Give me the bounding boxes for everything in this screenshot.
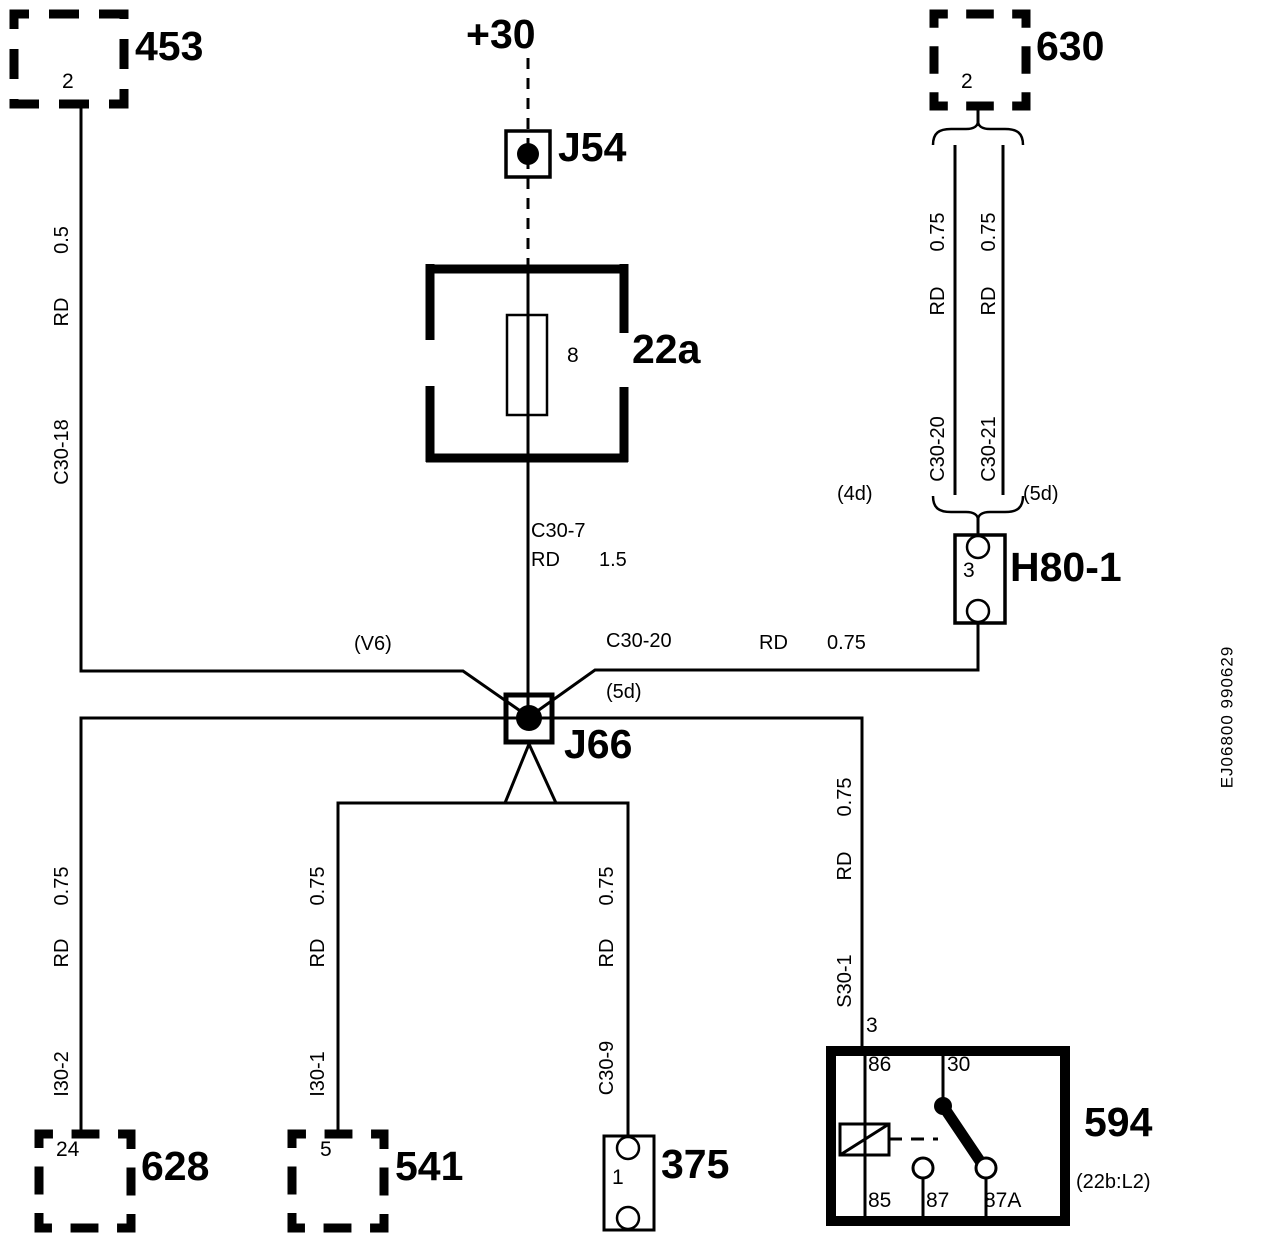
component-box-630 bbox=[934, 14, 1026, 106]
wire-size-h80-j66: 0.75 bbox=[827, 633, 866, 653]
wire-code-h80-j66: C30-20 bbox=[606, 631, 672, 651]
wire-color-594: RD bbox=[835, 852, 855, 881]
pin-541-5: 5 bbox=[320, 1139, 332, 1160]
relay-pin-85: 85 bbox=[868, 1190, 891, 1211]
component-label-541: 541 bbox=[395, 1146, 463, 1187]
relay-terminal-87 bbox=[913, 1158, 933, 1178]
wire-code-630-right: C30-21 bbox=[979, 416, 999, 482]
wire-color-541: RD bbox=[308, 939, 328, 968]
h80-terminal-top bbox=[967, 536, 989, 558]
wire-color-fuse-out: RD bbox=[531, 550, 560, 570]
375-terminal-bottom bbox=[617, 1207, 639, 1229]
component-label-453: 453 bbox=[135, 26, 203, 67]
wire-code-541: I30-1 bbox=[308, 1051, 328, 1097]
junction-label-j66: J66 bbox=[564, 724, 632, 765]
wire-size-594: 0.75 bbox=[835, 778, 855, 817]
ref-5d-at-j66: (5d) bbox=[606, 682, 642, 702]
wire-code-628: I30-2 bbox=[52, 1051, 72, 1097]
pin-h80-3: 3 bbox=[963, 560, 975, 581]
brace-under-630 bbox=[933, 121, 1023, 145]
pin-630-2: 2 bbox=[961, 71, 973, 92]
relay-terminal-87a bbox=[976, 1158, 996, 1178]
wire-color-h80-j66: RD bbox=[759, 633, 788, 653]
ref-v6: (V6) bbox=[354, 634, 392, 654]
wire-color-375: RD bbox=[597, 939, 617, 968]
relay-label-594: 594 bbox=[1084, 1102, 1152, 1143]
wire-code-375: C30-9 bbox=[597, 1041, 617, 1095]
relay-pin-3: 3 bbox=[866, 1015, 878, 1036]
ref-4d: (4d) bbox=[837, 484, 873, 504]
ref-5d: (5d) bbox=[1023, 484, 1059, 504]
wire-h80-to-j66 bbox=[529, 622, 978, 717]
wire-size-fuse-out: 1.5 bbox=[599, 550, 627, 570]
wire-size-628: 0.75 bbox=[52, 867, 72, 906]
power-feed-label: +30 bbox=[466, 14, 536, 55]
relay-pivot-dot bbox=[934, 1097, 952, 1115]
junction-dot-j66 bbox=[516, 705, 542, 731]
connector-label-375: 375 bbox=[661, 1144, 729, 1185]
pin-375-1: 1 bbox=[612, 1167, 624, 1188]
schematic-canvas bbox=[0, 0, 1280, 1246]
component-label-630: 630 bbox=[1036, 26, 1104, 67]
wire-code-c30-7: C30-7 bbox=[531, 521, 585, 541]
wire-color-453: RD bbox=[52, 298, 72, 327]
wire-size-375: 0.75 bbox=[597, 867, 617, 906]
component-box-628 bbox=[39, 1134, 131, 1228]
wire-code-630-left: C30-20 bbox=[928, 416, 948, 482]
wire-bus-628-j66-594 bbox=[81, 718, 862, 1130]
component-label-628: 628 bbox=[141, 1146, 209, 1187]
document-reference: EJ06800 990629 bbox=[1219, 646, 1236, 789]
wire-size-630-right: 0.75 bbox=[979, 213, 999, 252]
wire-bracket-541-375 bbox=[338, 744, 628, 1136]
junction-dot-j54 bbox=[517, 143, 539, 165]
junction-label-j54: J54 bbox=[558, 127, 626, 168]
wire-code-453: C30-18 bbox=[52, 419, 72, 485]
h80-terminal-bottom bbox=[967, 600, 989, 622]
wire-size-630-left: 0.75 bbox=[928, 213, 948, 252]
relay-pin-87: 87 bbox=[926, 1190, 949, 1211]
wiring-diagram-page: +30 453 630 J54 22a H80-1 J66 628 541 37… bbox=[0, 0, 1280, 1246]
wire-color-628: RD bbox=[52, 939, 72, 968]
wire-size-541: 0.75 bbox=[308, 867, 328, 906]
relay-pin-86: 86 bbox=[868, 1054, 891, 1075]
fusebox-label-22a: 22a bbox=[632, 329, 700, 370]
wire-color-630-left: RD bbox=[928, 287, 948, 316]
wire-code-594: S30-1 bbox=[835, 954, 855, 1007]
relay-pin-30: 30 bbox=[947, 1054, 970, 1075]
relay-ref-label: (22b:L2) bbox=[1076, 1172, 1151, 1192]
fuse-number-8: 8 bbox=[567, 345, 579, 366]
component-box-541 bbox=[292, 1134, 384, 1228]
pin-628-24: 24 bbox=[56, 1139, 79, 1160]
relay-pin-87a: 87A bbox=[984, 1190, 1021, 1211]
pin-453-2: 2 bbox=[62, 71, 74, 92]
wire-453-to-j66 bbox=[81, 108, 529, 717]
wire-color-630-right: RD bbox=[979, 287, 999, 316]
375-terminal-top bbox=[617, 1137, 639, 1159]
connector-label-h80-1: H80-1 bbox=[1010, 547, 1122, 588]
wire-size-453: 0.5 bbox=[52, 226, 72, 254]
brace-above-h80 bbox=[933, 496, 1023, 520]
